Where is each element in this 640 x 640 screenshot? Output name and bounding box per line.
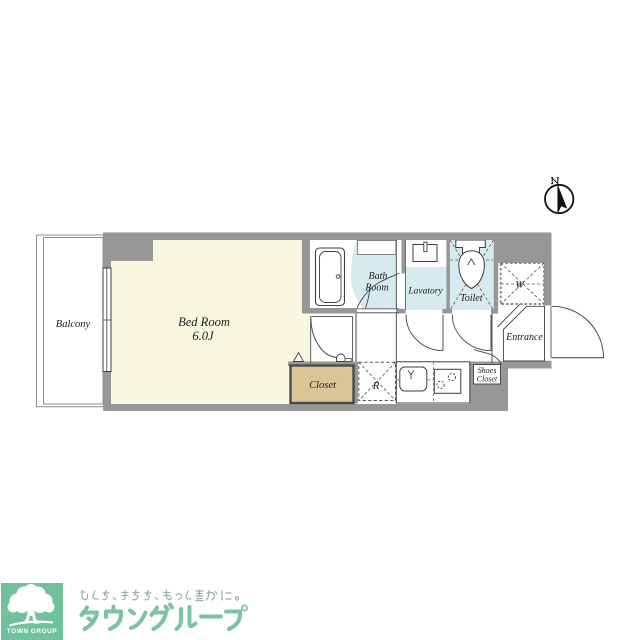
svg-text:Toilet: Toilet — [460, 293, 483, 304]
svg-text:Bath: Bath — [369, 271, 388, 282]
svg-text:6.0J: 6.0J — [192, 329, 215, 343]
svg-text:Bed Room: Bed Room — [178, 315, 230, 329]
svg-text:R: R — [372, 380, 380, 392]
svg-text:Balcony: Balcony — [56, 319, 91, 330]
svg-text:Lavatory: Lavatory — [407, 287, 443, 297]
svg-text:TOWN GROUP: TOWN GROUP — [7, 628, 58, 635]
svg-text:Closet: Closet — [477, 375, 498, 384]
svg-text:Entrance: Entrance — [505, 332, 543, 343]
svg-text:Closet: Closet — [309, 380, 337, 391]
